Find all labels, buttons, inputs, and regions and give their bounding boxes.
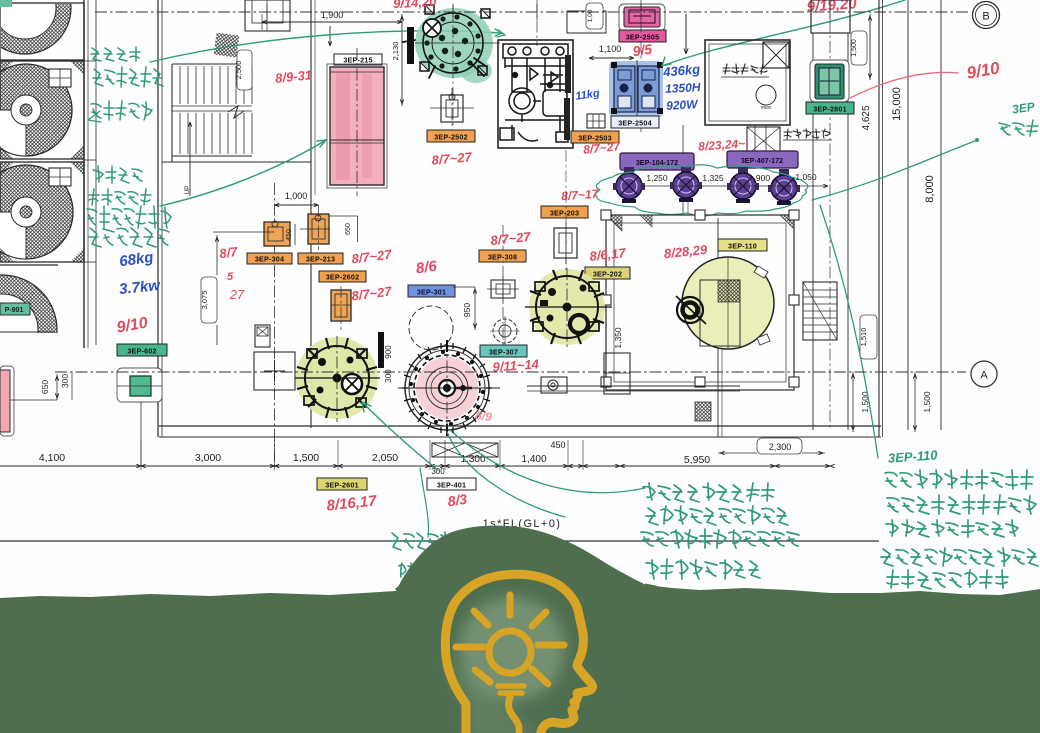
svg-text:650: 650 — [345, 223, 352, 235]
svg-text:A: A — [980, 370, 988, 382]
svg-text:3EP-2801: 3EP-2801 — [813, 104, 847, 113]
svg-text:8/3: 8/3 — [447, 491, 469, 510]
svg-text:300: 300 — [60, 374, 70, 388]
svg-text:#500: #500 — [761, 105, 772, 110]
svg-text:3EP-202: 3EP-202 — [593, 269, 622, 278]
svg-text:3EP-215: 3EP-215 — [343, 55, 372, 64]
svg-text:1,350: 1,350 — [613, 327, 623, 349]
svg-text:1,325: 1,325 — [702, 173, 724, 183]
svg-text:900: 900 — [384, 345, 393, 359]
svg-text:950: 950 — [462, 303, 472, 317]
svg-text:3EP-301: 3EP-301 — [417, 287, 446, 296]
svg-text:3,075: 3,075 — [200, 291, 209, 310]
svg-text:3EP-2502: 3EP-2502 — [434, 132, 468, 141]
svg-text:1,900: 1,900 — [321, 10, 344, 20]
svg-text:3EP-2504: 3EP-2504 — [618, 118, 652, 127]
svg-text:3EP-407-172: 3EP-407-172 — [741, 156, 783, 165]
svg-text:P-901: P-901 — [5, 307, 24, 314]
svg-text:8/7: 8/7 — [218, 244, 239, 261]
svg-text:300: 300 — [384, 369, 393, 383]
svg-text:1,000: 1,000 — [285, 191, 308, 201]
svg-text:920W: 920W — [666, 97, 700, 113]
svg-text:3EP-401: 3EP-401 — [437, 480, 466, 489]
svg-text:3EP-2601: 3EP-2601 — [325, 480, 359, 489]
svg-text:900: 900 — [756, 173, 770, 183]
svg-text:1350H: 1350H — [665, 80, 701, 96]
svg-text:3EP-110: 3EP-110 — [728, 241, 757, 250]
svg-text:3EP-2505: 3EP-2505 — [626, 32, 660, 41]
svg-text:8/9: 8/9 — [474, 408, 493, 424]
svg-text:8/6: 8/6 — [415, 258, 439, 278]
svg-text:450: 450 — [286, 229, 293, 241]
svg-text:B: B — [982, 11, 989, 23]
svg-text:2,130: 2,130 — [391, 42, 400, 61]
svg-text:1,510: 1,510 — [859, 328, 868, 347]
svg-text:1,050: 1,050 — [795, 172, 817, 182]
svg-text:1,100: 1,100 — [599, 44, 622, 54]
svg-text:9/5: 9/5 — [632, 41, 654, 60]
svg-text:UP: UP — [184, 185, 191, 194]
svg-text:5,950: 5,950 — [684, 454, 710, 466]
svg-text:3,000: 3,000 — [195, 452, 221, 464]
svg-text:8/7~17: 8/7~17 — [561, 187, 600, 204]
svg-text:8,000: 8,000 — [924, 175, 936, 203]
svg-text:1,400: 1,400 — [521, 454, 546, 465]
svg-text:1,500: 1,500 — [851, 39, 858, 57]
svg-text:300: 300 — [431, 467, 445, 476]
svg-text:3EP-304: 3EP-304 — [255, 254, 284, 263]
svg-text:5: 5 — [227, 271, 234, 283]
svg-text:3EP-2602: 3EP-2602 — [326, 272, 360, 281]
svg-text:3EP-213: 3EP-213 — [306, 254, 335, 263]
svg-text:450: 450 — [550, 440, 565, 450]
svg-text:1,00: 1,00 — [587, 9, 594, 22]
svg-text:3EP-307: 3EP-307 — [489, 347, 518, 356]
svg-text:1,500: 1,500 — [293, 452, 319, 464]
svg-text:2,300: 2,300 — [769, 442, 792, 452]
svg-text:15,000: 15,000 — [891, 87, 903, 121]
svg-text:3EP-602: 3EP-602 — [127, 346, 156, 355]
svg-text:1,250: 1,250 — [646, 173, 668, 183]
svg-text:650: 650 — [40, 380, 50, 394]
svg-text:3EP-203: 3EP-203 — [550, 208, 579, 217]
svg-text:4,100: 4,100 — [39, 452, 65, 464]
svg-text:2,500: 2,500 — [234, 61, 243, 80]
svg-text:4,625: 4,625 — [861, 105, 872, 130]
svg-text:2,050: 2,050 — [372, 452, 398, 464]
svg-text:27: 27 — [229, 287, 245, 302]
svg-text:1,500: 1,500 — [922, 391, 932, 413]
svg-text:3EP-308: 3EP-308 — [488, 252, 517, 261]
